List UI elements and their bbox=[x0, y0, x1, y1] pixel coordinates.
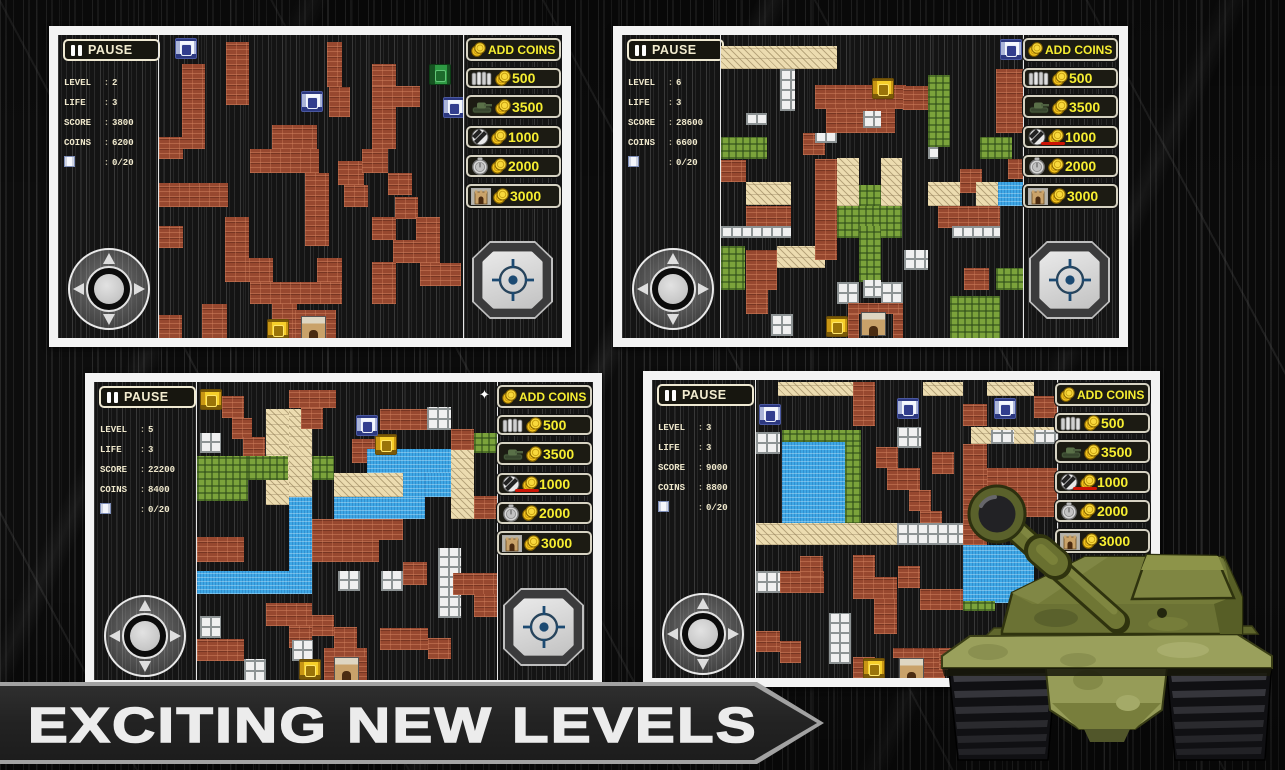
svg-text:EXCITING NEW LEVELS: EXCITING NEW LEVELS bbox=[28, 699, 758, 753]
